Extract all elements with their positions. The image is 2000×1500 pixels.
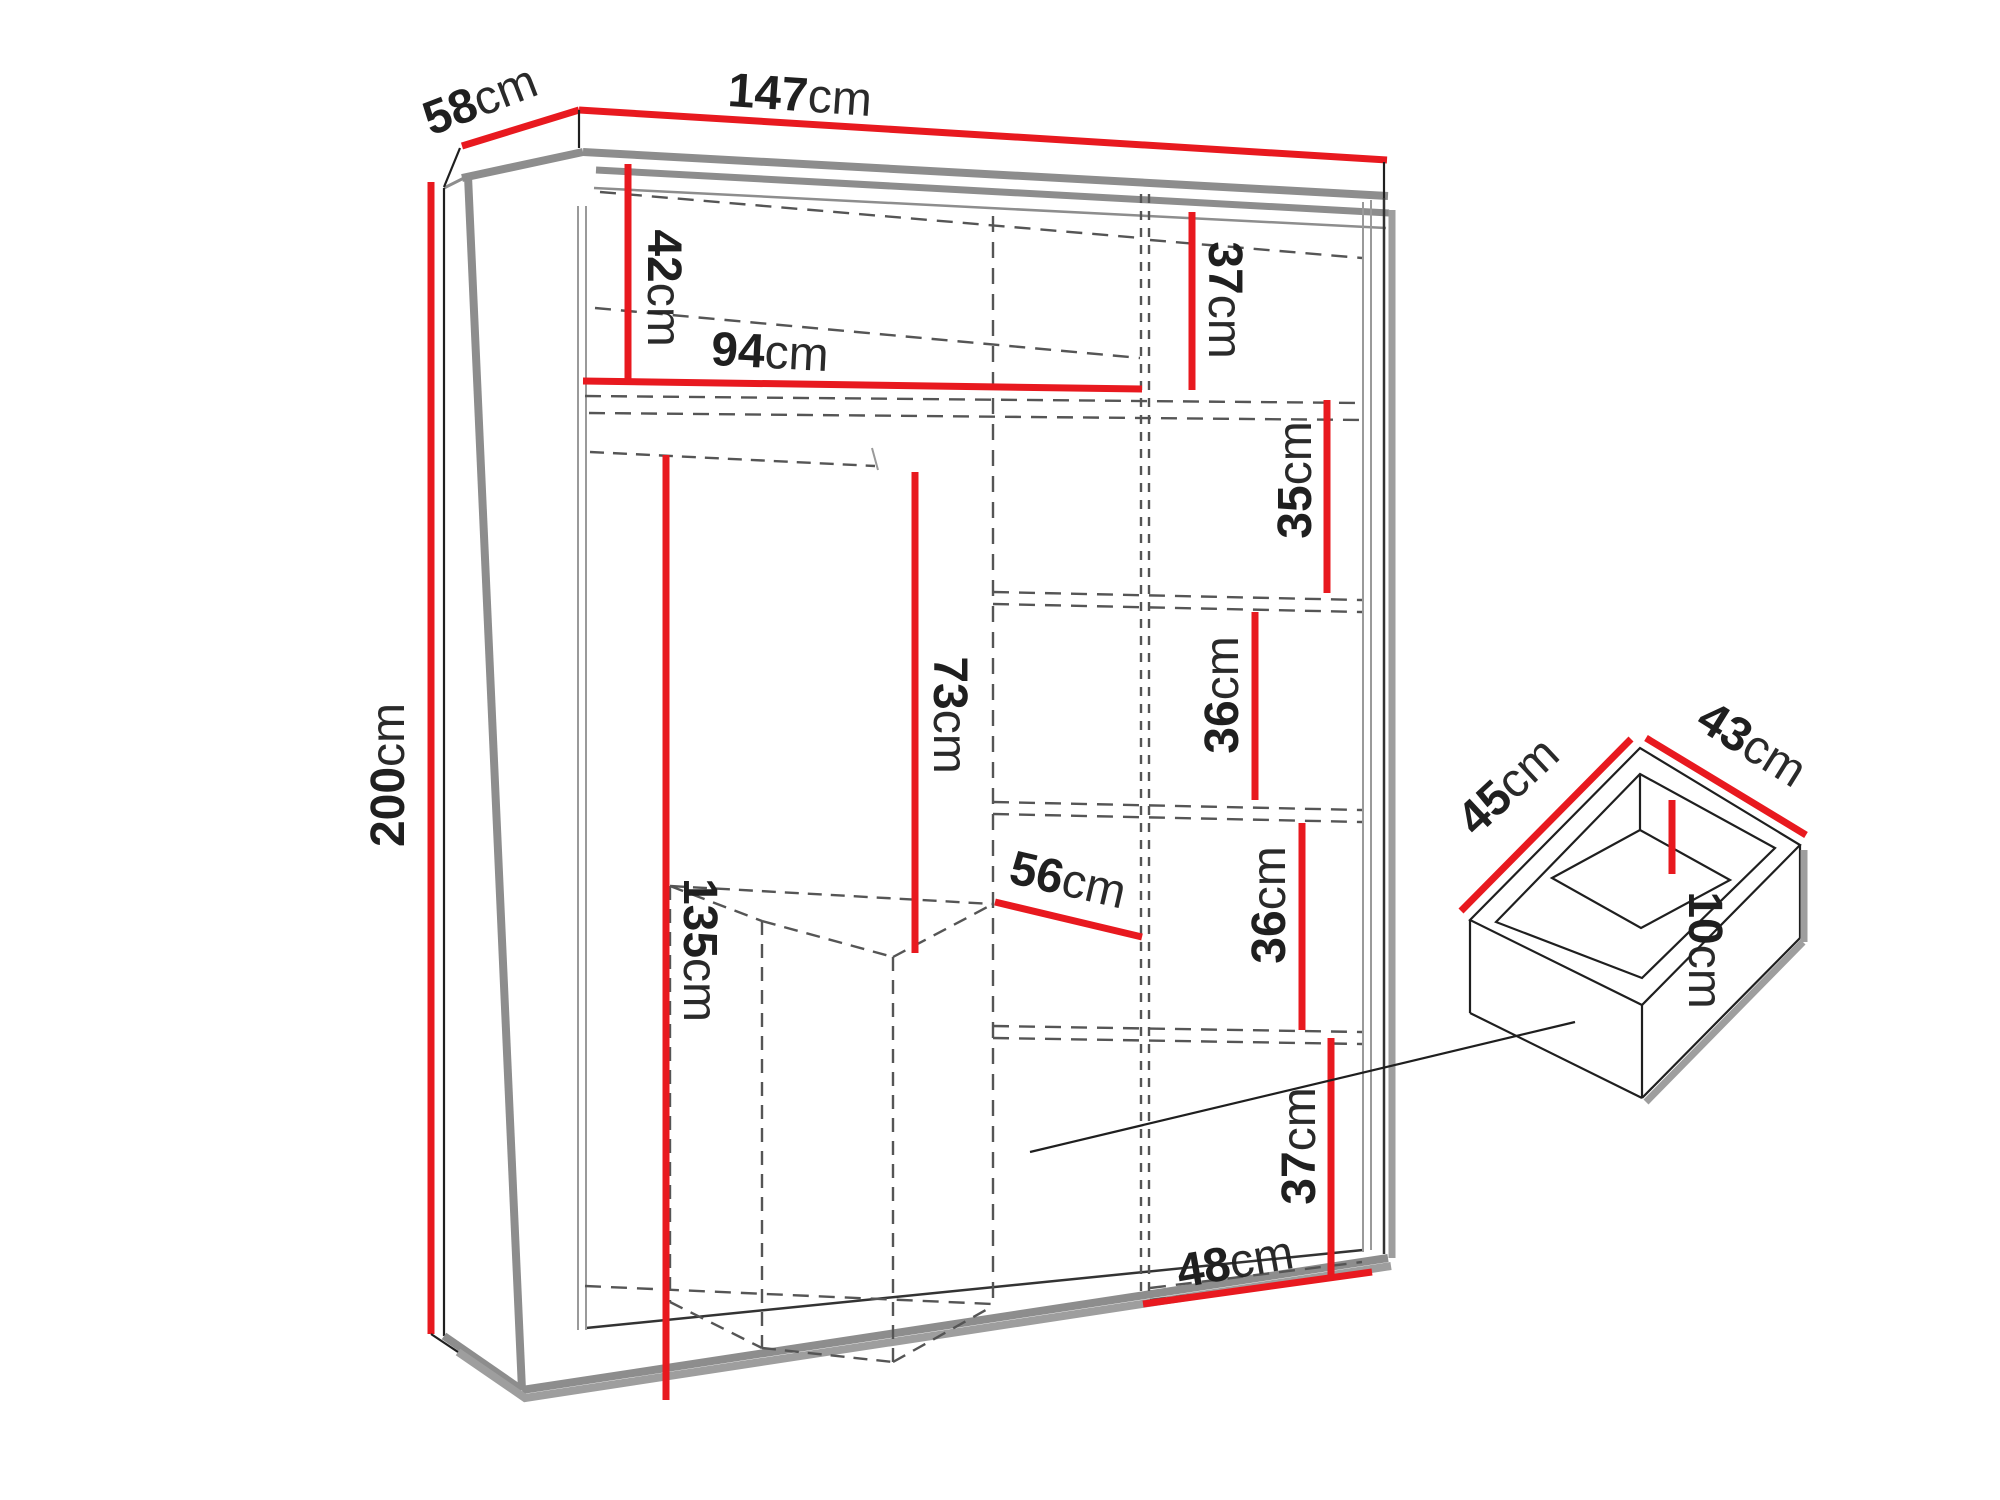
dim-135-label: 135cm <box>674 878 727 1022</box>
dim-drawer-10-label: 10cm <box>1679 891 1732 1008</box>
wardrobe-dimension-diagram: 58cm 147cm 200cm 42cm 94cm 37cm 35cm 36c… <box>0 0 2000 1500</box>
drawer-unit-bottom-left <box>670 1302 762 1348</box>
dim-36-upper-label: 36cm <box>1196 636 1249 753</box>
top-face-left-edge <box>462 152 583 178</box>
ceiling-back-right-dashed <box>1150 240 1362 258</box>
dim-73-label: 73cm <box>924 656 977 773</box>
dim-depth-label: 58cm <box>416 54 545 146</box>
dim-37-bottom-label: 37cm <box>1273 1087 1326 1204</box>
hanging-rod-dashed <box>590 452 875 466</box>
shelf-1-front-dashed <box>585 396 1362 403</box>
dim-drawer-45-label: 45cm <box>1447 727 1569 846</box>
left-front-edge <box>468 176 522 1390</box>
dim-94-label: 94cm <box>710 322 830 381</box>
dim-35-label: 35cm <box>1269 421 1322 538</box>
dim-36-lower-label: 36cm <box>1243 846 1296 963</box>
shelf-3-front-dashed <box>993 802 1362 810</box>
bottom-left-floor-dashed <box>585 1286 993 1304</box>
wardrobe-hidden-lines <box>585 192 1362 1362</box>
shelf-1-back-dashed <box>589 413 1362 420</box>
dim-42-label: 42cm <box>638 229 691 346</box>
shelf-2-front-dashed <box>993 592 1362 600</box>
left-face-bottom-edge <box>444 1336 522 1390</box>
diagram-canvas: 58cm 147cm 200cm 42cm 94cm 37cm 35cm 36c… <box>0 0 2000 1500</box>
dimension-labels: 58cm 147cm 200cm 42cm 94cm 37cm 35cm 36c… <box>362 54 1816 1298</box>
dim-width-label: 147cm <box>726 64 873 127</box>
drawer-unit-top-right <box>893 904 993 957</box>
shelf-4-back-dashed <box>993 1038 1362 1044</box>
dim-height-label: 200cm <box>362 703 415 847</box>
dim-37-top-label: 37cm <box>1199 241 1252 358</box>
drawer-unit-top-front <box>762 921 893 957</box>
dim-line-94 <box>583 381 1142 389</box>
dim-drawer-43-label: 43cm <box>1688 690 1816 797</box>
shelf-2-back-dashed <box>993 604 1362 612</box>
dim-line-width-147 <box>579 110 1387 160</box>
shelf-3-back-dashed <box>993 814 1362 822</box>
shelf-4-front-dashed <box>993 1026 1362 1032</box>
